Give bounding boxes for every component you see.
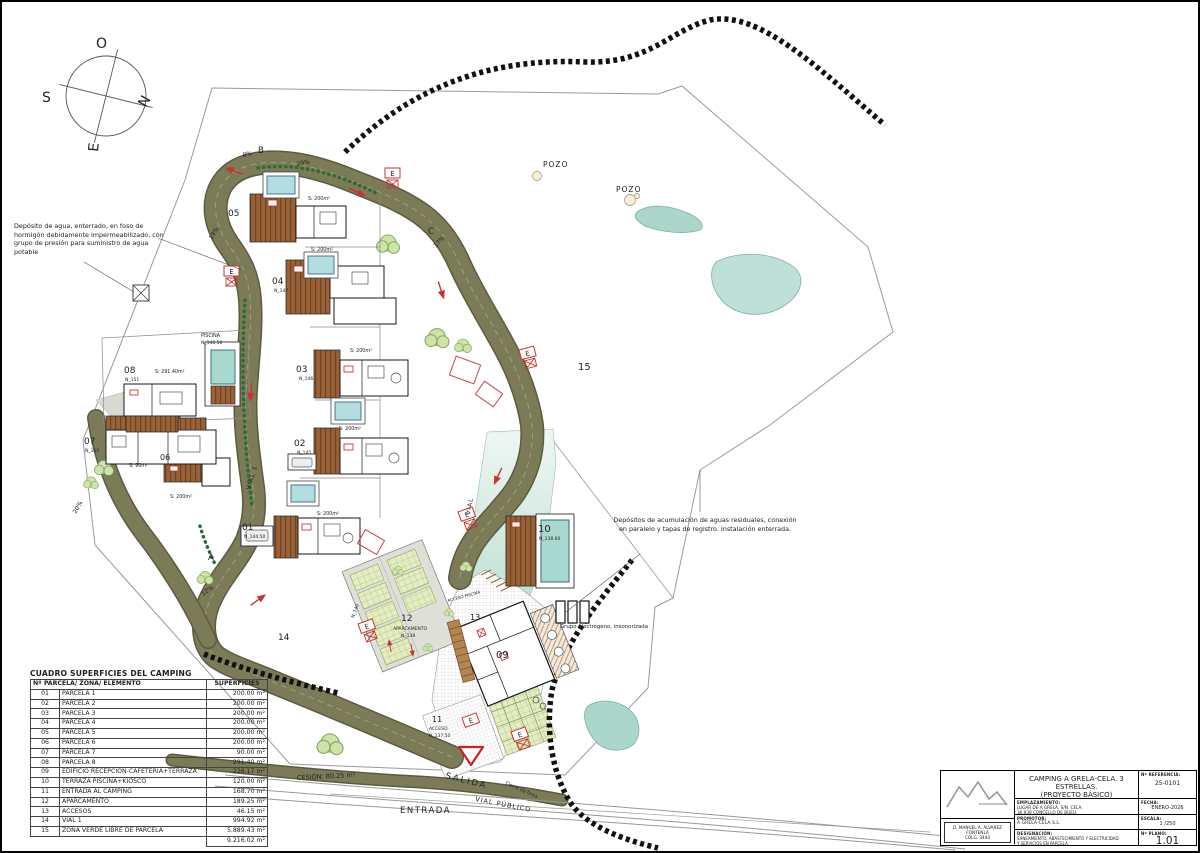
svg-text:S: 200m²: S: 200m² xyxy=(339,426,361,432)
svg-text:03: 03 xyxy=(296,365,307,375)
pozo-label: POZO xyxy=(543,160,568,169)
svg-text:ACCESO: ACCESO xyxy=(429,726,448,732)
pool-parcel-08 xyxy=(205,342,240,406)
svg-text:20%: 20% xyxy=(72,500,85,515)
svg-text:S: 200m²: S: 200m² xyxy=(311,247,333,253)
zone-15-label: 15 xyxy=(578,362,591,373)
svg-text:11: 11 xyxy=(432,715,442,724)
table-row: 04PARCELA 4200.00 m² xyxy=(31,719,268,729)
svg-text:N_144.50: N_144.50 xyxy=(244,534,265,540)
svg-text:E: E xyxy=(390,170,394,178)
svg-text:B: B xyxy=(258,146,264,156)
table-header: Nº PARCELA/ ZONA/ ELEMENTO SUPERFICIES xyxy=(31,680,268,690)
generator-units xyxy=(556,601,589,623)
svg-text:S: 200m²: S: 200m² xyxy=(170,494,192,500)
site-cell: EMPLAZAMIENTO: LUGAR DE A GRELA, S/N. CE… xyxy=(1015,798,1139,814)
svg-text:A: A xyxy=(208,553,214,563)
compass-rose: O S N E xyxy=(42,36,164,154)
svg-text:08: 08 xyxy=(124,366,136,376)
svg-text:05: 05 xyxy=(228,209,239,219)
pool-parcel-05 xyxy=(263,172,299,198)
electric-box: E xyxy=(224,266,239,286)
table-row: 01PARCELA 1200.00 m² xyxy=(31,689,268,699)
table-row: 09EDIFICIO RECEPCIÓN-CAFETERÍA+TERRAZA22… xyxy=(31,768,268,778)
svg-text:C: C xyxy=(428,227,434,237)
compass-o: O xyxy=(96,36,107,52)
compass-e: E xyxy=(86,142,103,152)
architect-stamp: D. MANUEL A. ÁLVAREZ FONTENLA COLG. 3444 xyxy=(941,818,1015,844)
note-water-tank: Depósito de agua, enterrado, en foso de … xyxy=(14,222,166,257)
table-row: 08PARCELA 8291.40 m² xyxy=(31,758,268,768)
svg-text:N_137.50: N_137.50 xyxy=(429,733,450,739)
svg-text:S: 200m²: S: 200m² xyxy=(308,196,330,202)
pool-parcel-01 xyxy=(287,481,319,506)
firm-logo xyxy=(941,771,1015,818)
ponds xyxy=(584,206,800,750)
pond-lower xyxy=(584,701,638,750)
svg-text:N_151: N_151 xyxy=(125,377,139,383)
surfaces-table-title: CUADRO SUPERFICIES DEL CAMPING xyxy=(30,669,268,678)
wall-north xyxy=(345,19,885,152)
svg-text:10: 10 xyxy=(538,524,551,535)
table-row: 07PARCELA 790.00 m² xyxy=(31,748,268,758)
reference-cell: Nº REFERENCIA: 25-0101 xyxy=(1139,771,1196,798)
table-row: 12APARCAMENTO189.25 m² xyxy=(31,797,268,807)
table-row: 10TERRAZA PISCINA+KIOSCO120.00 m² xyxy=(31,777,268,787)
svg-text:12: 12 xyxy=(401,614,412,624)
svg-text:07: 07 xyxy=(84,437,95,447)
water-tank-symbol xyxy=(133,285,149,301)
svg-text:04: 04 xyxy=(272,277,284,287)
title-block: D. MANUEL A. ÁLVAREZ FONTENLA COLG. 3444… xyxy=(940,770,1197,846)
cabin-parcel-03 xyxy=(314,350,408,398)
svg-text:S: 90m²: S: 90m² xyxy=(129,463,148,469)
plan-number-cell: Nº PLANO: 1.01 xyxy=(1139,829,1196,845)
pool-parcel-04 xyxy=(304,252,338,278)
table-row: 13ACCESOS46.15 m² xyxy=(31,807,268,817)
svg-text:N_146.50: N_146.50 xyxy=(201,340,222,346)
scale-cell: ESCALA: 1 /250 xyxy=(1139,814,1196,829)
svg-text:N_138: N_138 xyxy=(401,633,415,639)
pozo-label: POZO xyxy=(616,185,641,194)
svg-text:N_150: N_150 xyxy=(85,448,99,454)
table-row: 05PARCELA 5200.00 m² xyxy=(31,728,268,738)
svg-text:14: 14 xyxy=(278,633,290,643)
svg-text:ENTRADA: ENTRADA xyxy=(400,806,451,816)
svg-text:PISCINA: PISCINA xyxy=(201,333,221,339)
table-row: 06PARCELA 6200.00 m² xyxy=(31,738,268,748)
note-sewage-tanks: Depósitos de acumulación de aguas residu… xyxy=(612,516,798,533)
pool-parcels-02-03 xyxy=(331,398,365,424)
compass-s: S xyxy=(42,90,51,106)
svg-text:E: E xyxy=(229,268,233,276)
cabin-parcel-04 xyxy=(286,260,396,324)
note-generator: Grupo electrógeno, insonorizada xyxy=(560,624,680,631)
svg-text:06: 06 xyxy=(160,453,170,462)
svg-text:S: 200m²: S: 200m² xyxy=(350,348,372,354)
table-row: 15ZONA VERDE LIBRE DE PARCELA5.889.43 m² xyxy=(31,826,268,836)
date-cell: FECHA: ENERO-2026 xyxy=(1139,798,1196,814)
table-total-row: 9.216.02 m² xyxy=(31,836,268,846)
house-parcel-08 xyxy=(124,384,206,432)
svg-text:APARCAMENTO: APARCAMENTO xyxy=(393,626,428,632)
project-title: CAMPING A GRELA-CELA. 3 ESTRELLAS. (PROY… xyxy=(1015,771,1139,798)
surfaces-table: CUADRO SUPERFICIES DEL CAMPING Nº PARCEL… xyxy=(30,669,268,847)
svg-text:S: 200m²: S: 200m² xyxy=(317,511,339,517)
promoter-cell: PROMOTOR: A GRELA-CELA S.L. xyxy=(1015,814,1139,829)
svg-text:02: 02 xyxy=(294,439,305,449)
table-row: 14VIAL 1994.92 m² xyxy=(31,817,268,827)
svg-text:01: 01 xyxy=(242,523,253,533)
svg-text:N_146: N_146 xyxy=(299,376,313,382)
cabin-parcel-05 xyxy=(250,194,346,242)
table-row: 11ENTRADA AL CAMPING168.70 m² xyxy=(31,787,268,797)
pond-large xyxy=(712,254,801,314)
table-row: 03PARCELA 3200.00 m² xyxy=(31,709,268,719)
svg-text:09: 09 xyxy=(496,650,509,661)
svg-text:S: 291.40m²: S: 291.40m² xyxy=(155,369,185,375)
pond-upper xyxy=(635,206,702,232)
public-road xyxy=(215,775,965,850)
svg-text:N_145: N_145 xyxy=(297,450,311,456)
svg-text:13: 13 xyxy=(470,613,480,622)
svg-text:N_138.60: N_138.60 xyxy=(539,536,560,542)
mountain-logo-icon xyxy=(947,782,1007,807)
table-row: 02PARCELA 2200.00 m² xyxy=(31,699,268,709)
svg-text:N_147: N_147 xyxy=(274,288,288,294)
designation-cell: DESIGNACIÓN: SANEAMIENTO, ABASTECIMIENTO… xyxy=(1015,829,1139,845)
